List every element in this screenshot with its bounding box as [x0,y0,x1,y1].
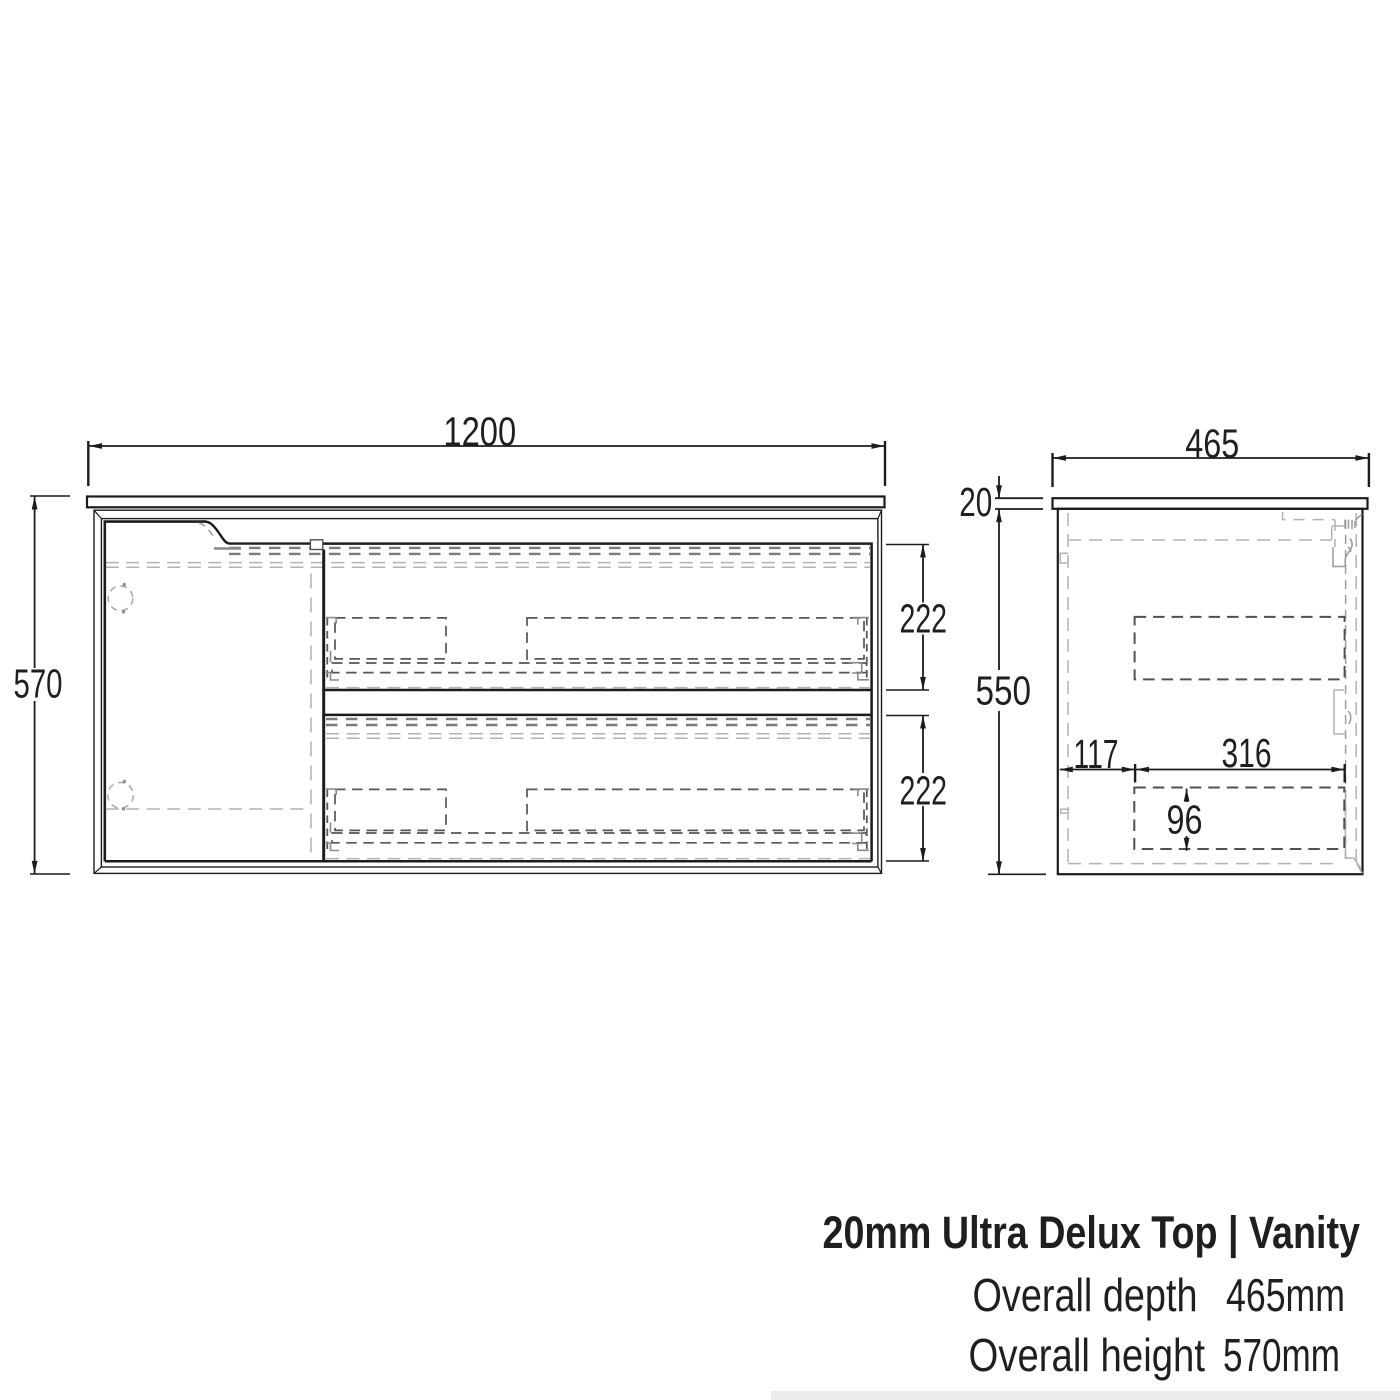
svg-text:20mm Ultra Delux Top | Vanity: 20mm Ultra Delux Top | Vanity [823,1207,1361,1259]
svg-text:222: 222 [900,596,948,642]
svg-text:96: 96 [1167,797,1203,843]
svg-text:465: 465 [1185,421,1239,467]
svg-text:570: 570 [14,661,63,707]
svg-text:Overall height: Overall height [969,1329,1206,1381]
svg-text:222: 222 [900,768,948,814]
svg-text:20: 20 [959,479,992,525]
svg-text:316: 316 [1222,730,1272,776]
svg-text:465mm: 465mm [1226,1269,1345,1321]
svg-text:Overall depth: Overall depth [973,1269,1198,1321]
svg-text:550: 550 [976,668,1032,714]
svg-text:570mm: 570mm [1223,1329,1340,1381]
svg-text:1200: 1200 [443,409,516,455]
svg-text:117: 117 [1074,731,1119,777]
